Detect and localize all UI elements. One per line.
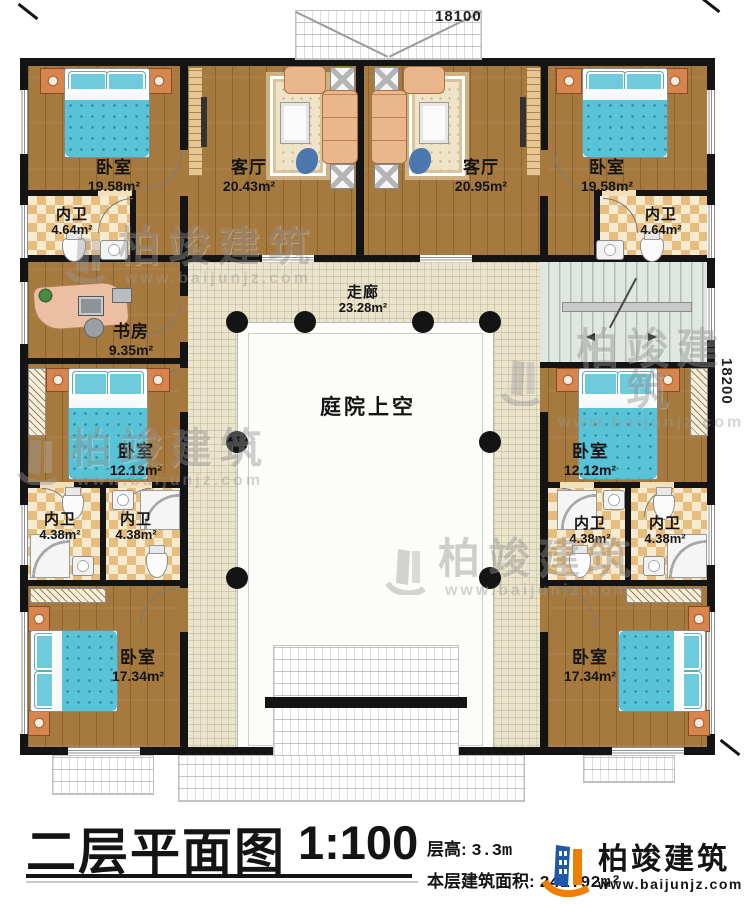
nightstand xyxy=(656,368,680,392)
floor-plan: 卧室19.58m² 客厅20.43m² 客厅20.95m² 卧室19.58m² … xyxy=(0,0,750,790)
room-label-bedroom-tl: 卧室19.58m² xyxy=(88,158,140,194)
room-label-bedroom-mr: 卧室12.12m² xyxy=(564,442,616,478)
wall-baths-l-divider xyxy=(100,484,106,584)
window xyxy=(20,612,28,734)
wall-baths-r-divider xyxy=(625,484,631,584)
nightstand xyxy=(28,606,50,632)
column xyxy=(479,431,501,453)
sink xyxy=(112,490,134,510)
floor-height-value: 3.3m xyxy=(471,842,512,861)
wardrobe xyxy=(30,588,106,603)
column xyxy=(226,311,248,333)
room-label-bath-tl: 内卫4.64m² xyxy=(51,206,92,238)
corner-tick xyxy=(18,3,39,20)
bed xyxy=(618,630,706,712)
room-label-bedroom-br: 卧室17.34m² xyxy=(564,648,616,684)
sofa xyxy=(371,90,407,164)
company-logo-name: 柏竣建筑 xyxy=(598,844,743,876)
window xyxy=(707,505,715,565)
roof-skirt-center xyxy=(178,755,525,802)
roof-skirt-right xyxy=(583,755,675,783)
coffee-table xyxy=(419,102,449,144)
room-label-living-l: 客厅20.43m² xyxy=(223,158,275,194)
sink xyxy=(596,240,624,260)
room-label-bath-ml2: 内卫4.38m² xyxy=(115,511,156,543)
window xyxy=(20,282,28,344)
wardrobe xyxy=(690,368,708,436)
bed xyxy=(30,630,118,712)
side-table xyxy=(330,164,355,189)
column xyxy=(226,431,248,453)
stair-handrail xyxy=(562,302,692,312)
company-logo-icon xyxy=(538,839,592,897)
window xyxy=(20,90,28,154)
side-table xyxy=(374,164,399,189)
door-opening xyxy=(540,588,548,632)
wardrobe xyxy=(626,588,702,603)
coffee-table xyxy=(280,102,310,144)
desk-chair xyxy=(84,318,104,338)
floor-height-label: 层高: xyxy=(427,840,467,859)
sink xyxy=(603,490,625,510)
company-logo-url: www.baijunjz.com xyxy=(598,876,743,892)
sheet-scale: 1:100 xyxy=(298,815,418,870)
sink xyxy=(72,556,94,576)
nightstand xyxy=(40,68,66,94)
room-label-bedroom-bl: 卧室17.34m² xyxy=(112,648,164,684)
nightstand xyxy=(46,368,70,392)
company-logo: 柏竣建筑 www.baijunjz.com xyxy=(538,839,743,897)
sink xyxy=(643,556,665,576)
window xyxy=(707,90,715,154)
window xyxy=(707,205,715,258)
nightstand xyxy=(556,68,582,94)
window xyxy=(20,205,28,258)
dimension-top: 18100 xyxy=(435,8,482,25)
armchair xyxy=(403,66,445,94)
bed xyxy=(64,68,150,158)
column xyxy=(226,567,248,589)
sink xyxy=(100,240,128,260)
nightstand xyxy=(556,368,580,392)
entrance-wall-bar xyxy=(265,697,467,708)
dimension-right: 18200 xyxy=(718,358,735,405)
window xyxy=(612,747,684,755)
room-label-bath-ml1: 内卫4.38m² xyxy=(39,511,80,543)
door-opening xyxy=(560,482,594,488)
door-opening xyxy=(180,588,188,632)
roof-skirt-left xyxy=(52,755,154,795)
nightstand xyxy=(146,368,170,392)
corner-tick xyxy=(700,0,721,13)
room-label-bath-mr1: 内卫4.38m² xyxy=(569,515,610,547)
door-opening xyxy=(540,150,548,196)
stairwell xyxy=(548,262,707,362)
nightstand xyxy=(688,606,710,632)
title-underline-thin xyxy=(26,881,418,883)
window xyxy=(68,747,140,755)
wall-study-bottom xyxy=(20,358,186,364)
side-table xyxy=(330,67,355,92)
stair-direction-arrow xyxy=(586,333,595,341)
courtyard-label: 庭院上空 xyxy=(320,391,416,421)
stair-opening xyxy=(540,262,548,362)
wardrobe xyxy=(28,368,46,436)
printer xyxy=(112,288,132,303)
title-underline xyxy=(26,874,412,878)
tv xyxy=(201,97,207,147)
computer-monitor xyxy=(78,296,104,316)
wall-baths-r-bottom xyxy=(548,580,715,586)
room-label-corridor: 走廊23.28m² xyxy=(339,284,387,316)
room-label-bedroom-ml: 卧室12.12m² xyxy=(110,442,162,478)
door-opening xyxy=(180,368,188,412)
tv xyxy=(520,97,526,147)
tv-cabinet xyxy=(526,67,541,177)
floor-area-label: 本层建筑面积: xyxy=(427,872,535,891)
room-label-bedroom-tr: 卧室19.58m² xyxy=(581,158,633,194)
door-opening xyxy=(540,368,548,412)
column xyxy=(412,311,434,333)
floor-plan-sheet: 卧室19.58m² 客厅20.43m² 客厅20.95m² 卧室19.58m² … xyxy=(0,0,750,906)
room-label-bath-mr2: 内卫4.38m² xyxy=(644,515,685,547)
column xyxy=(479,311,501,333)
room-label-bath-tr: 内卫4.64m² xyxy=(640,206,681,238)
nightstand xyxy=(28,710,50,736)
stair-direction-arrow xyxy=(648,333,657,341)
armchair xyxy=(284,66,326,94)
side-table xyxy=(374,67,399,92)
door-panel xyxy=(420,255,472,262)
bed xyxy=(582,68,668,158)
corner-tick xyxy=(720,739,741,756)
door-opening xyxy=(118,482,152,488)
column xyxy=(294,311,316,333)
column xyxy=(479,567,501,589)
nightstand xyxy=(688,710,710,736)
door-panel xyxy=(262,255,314,262)
plant xyxy=(38,288,53,303)
sofa xyxy=(322,90,358,164)
window xyxy=(20,505,28,565)
room-label-living-r: 客厅20.95m² xyxy=(455,158,507,194)
room-label-study: 书房9.35m² xyxy=(109,322,153,358)
window xyxy=(707,288,715,340)
